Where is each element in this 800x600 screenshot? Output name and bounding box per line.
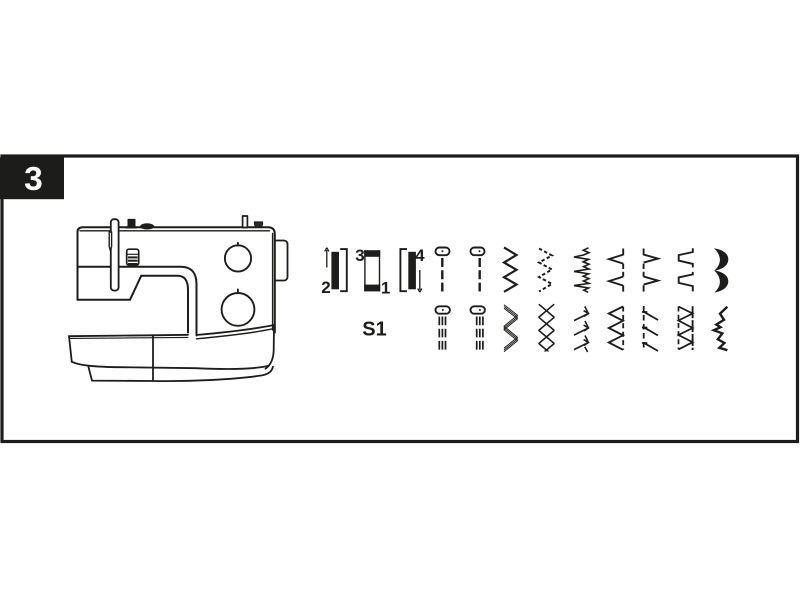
svg-text:3: 3 (355, 246, 364, 265)
svg-text:4: 4 (415, 246, 425, 265)
svg-text:S1: S1 (362, 318, 386, 340)
svg-text:1: 1 (381, 279, 390, 298)
svg-text:3: 3 (24, 161, 43, 198)
svg-text:2: 2 (321, 278, 330, 297)
